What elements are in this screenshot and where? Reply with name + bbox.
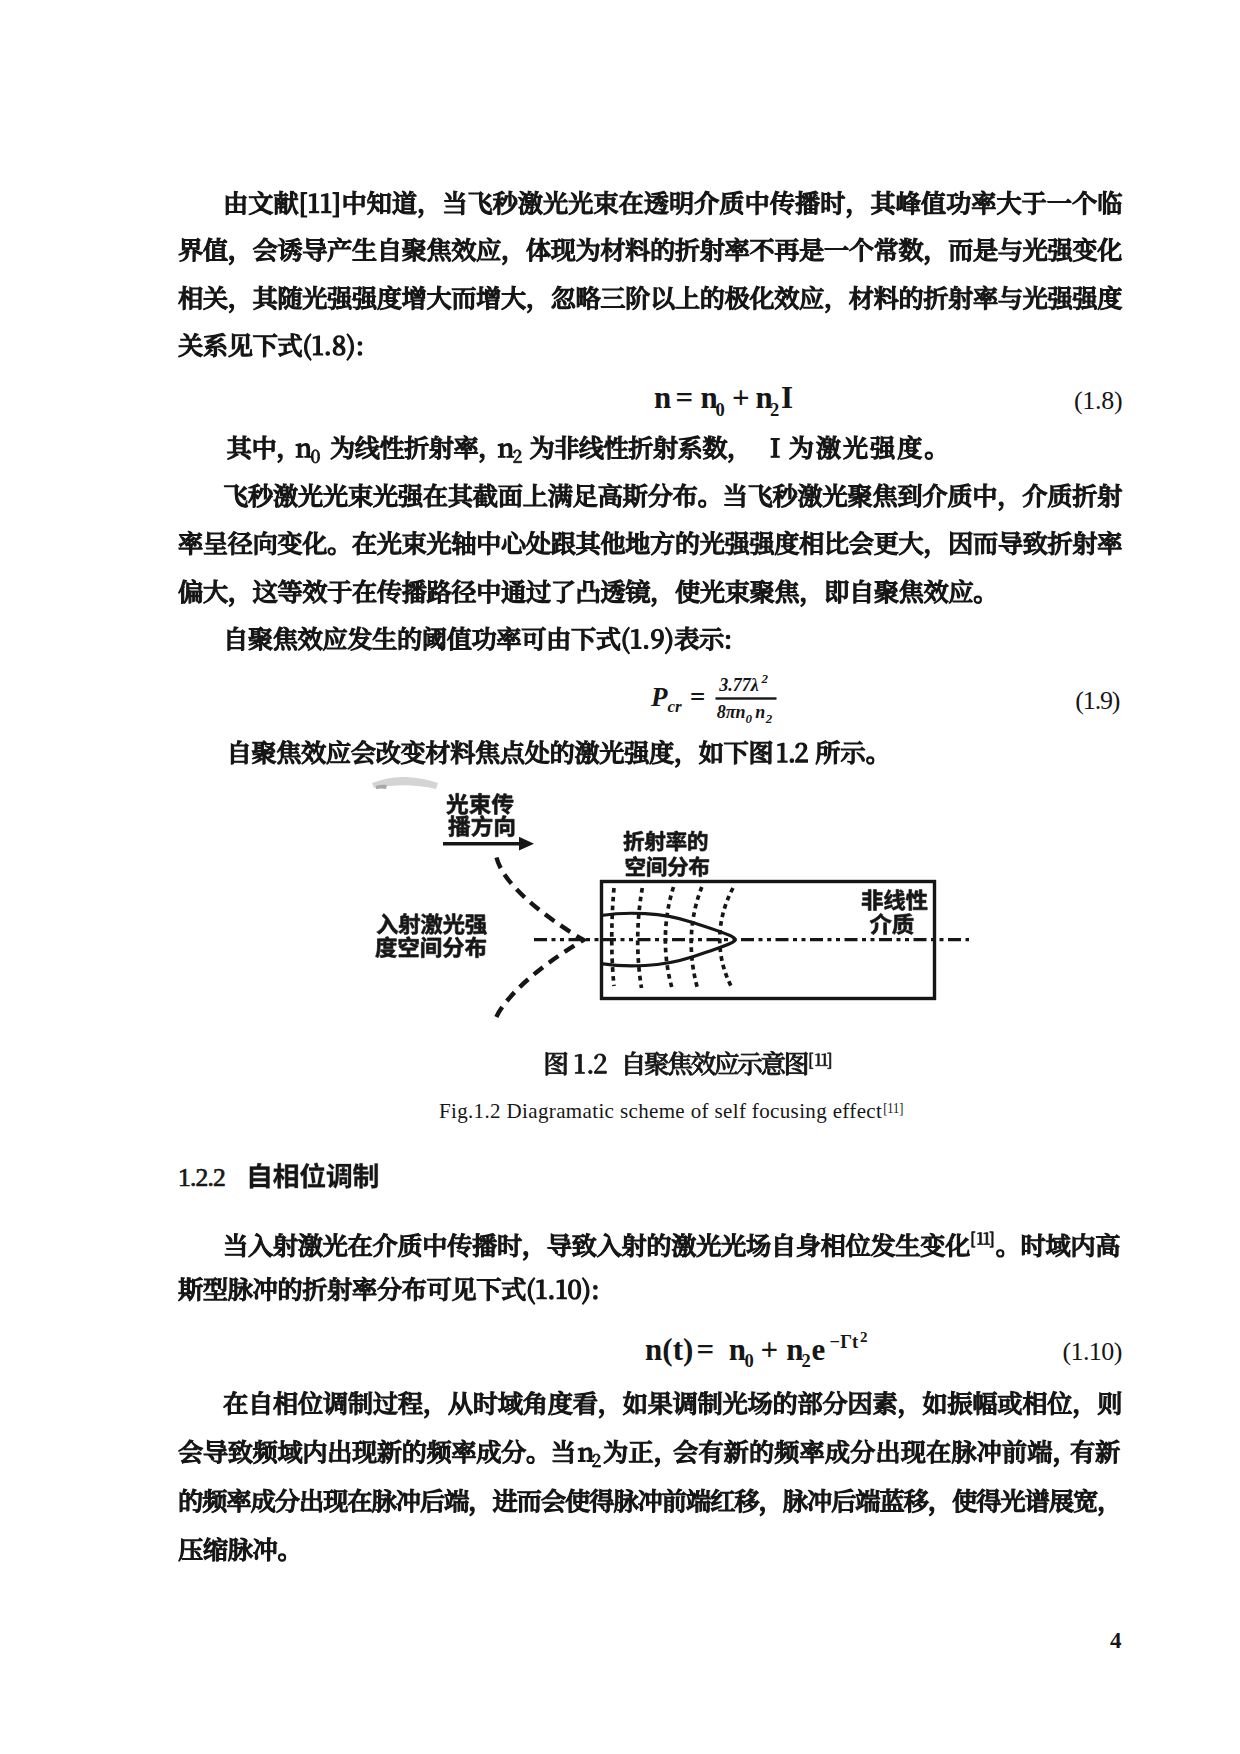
svg-text:−Γt: −Γt [830, 1332, 859, 1352]
svg-text:1.2.2: 1.2.2 [178, 1163, 226, 1192]
svg-text:0: 0 [745, 1351, 754, 1371]
svg-text:0: 0 [716, 400, 725, 420]
svg-text:3.77λ: 3.77λ [718, 675, 759, 695]
svg-text:n: n [755, 702, 765, 722]
svg-text:2: 2 [770, 400, 779, 420]
svg-text:[11]: [11] [883, 1100, 903, 1116]
svg-text:2: 2 [765, 711, 773, 726]
svg-text:8πn: 8πn [717, 702, 746, 722]
svg-text:I: I [781, 380, 793, 415]
svg-text:4: 4 [1110, 1628, 1122, 1653]
svg-text:+: + [732, 380, 750, 415]
svg-text:+: + [761, 1332, 779, 1367]
svg-text:=: = [690, 682, 705, 712]
svg-text:2: 2 [802, 1351, 811, 1371]
svg-text:=: = [697, 1332, 715, 1367]
svg-text:(1.9): (1.9) [1075, 686, 1120, 715]
svg-text:n: n [654, 380, 671, 415]
svg-text:(1.8): (1.8) [1074, 386, 1123, 415]
svg-text:0: 0 [746, 711, 753, 726]
svg-text:e: e [812, 1332, 826, 1367]
svg-text:cr: cr [668, 697, 683, 716]
svg-text:Fig.1.2 Diagramatic scheme of: Fig.1.2 Diagramatic scheme of self focus… [439, 1099, 882, 1123]
svg-text:n(t): n(t) [645, 1332, 693, 1367]
svg-text:n: n [729, 1332, 746, 1367]
svg-text:2: 2 [860, 1329, 868, 1345]
svg-text:(1.10): (1.10) [1063, 1337, 1123, 1366]
svg-text:P: P [650, 682, 668, 712]
svg-text:2: 2 [761, 671, 769, 686]
svg-text:=: = [676, 380, 694, 415]
